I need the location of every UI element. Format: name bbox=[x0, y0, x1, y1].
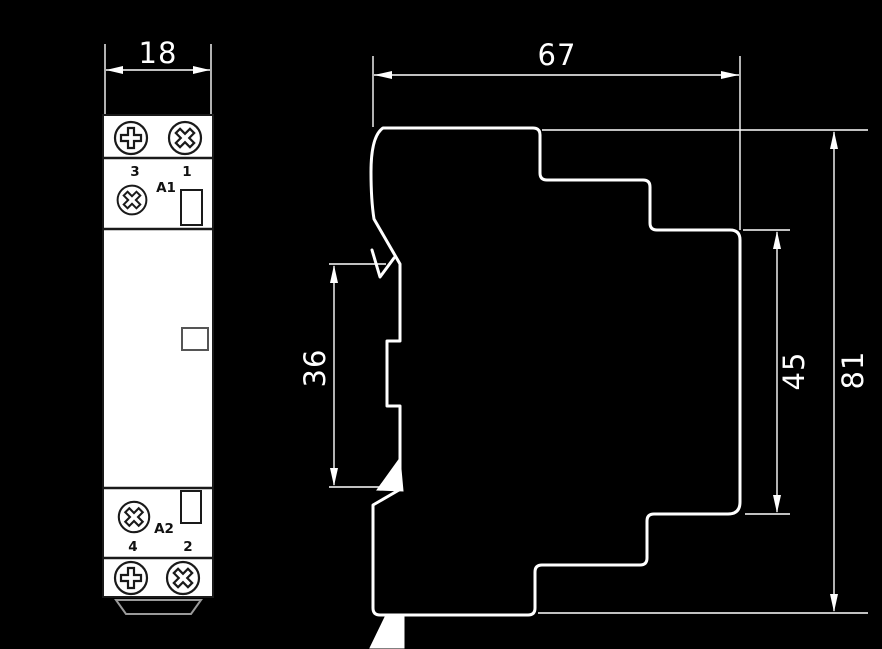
arrowhead-down-icon bbox=[773, 495, 781, 513]
rear-height-dimension: 45 bbox=[743, 230, 811, 514]
center-marker-window bbox=[182, 328, 208, 350]
arrowhead-up-icon bbox=[773, 231, 781, 249]
arrowhead-right-icon bbox=[193, 66, 210, 74]
screw-a1-icon bbox=[118, 186, 147, 215]
screw-bottom-left-icon bbox=[115, 562, 147, 594]
terminal-label-4: 4 bbox=[128, 539, 137, 555]
screw-a2-icon bbox=[119, 502, 149, 532]
arrowhead-down-icon bbox=[830, 594, 838, 612]
side-view: 67 36 45 bbox=[298, 38, 870, 648]
front-foot-trapezoid bbox=[116, 600, 201, 614]
screw-top-right-icon bbox=[169, 122, 201, 154]
arrowhead-left-icon bbox=[106, 66, 123, 74]
arrowhead-left-icon bbox=[374, 71, 392, 79]
arrowhead-down-icon bbox=[330, 468, 338, 486]
front-view: 18 3 1 A1 A2 bbox=[103, 36, 213, 614]
screw-top-left-icon bbox=[115, 122, 147, 154]
drawing-svg: 18 3 1 A1 A2 bbox=[0, 0, 882, 649]
din-clip-tab bbox=[377, 458, 403, 491]
rail-section-dimension: 36 bbox=[298, 264, 386, 487]
coil-label-a2: A2 bbox=[154, 521, 174, 537]
terminal-label-1: 1 bbox=[182, 164, 191, 180]
front-width-value: 18 bbox=[139, 36, 178, 70]
indicator-window bbox=[181, 491, 201, 523]
dimension-drawing-canvas: 18 3 1 A1 A2 bbox=[0, 0, 882, 649]
side-depth-dimension: 67 bbox=[373, 38, 740, 230]
coil-label-a1: A1 bbox=[156, 180, 176, 196]
indicator-window bbox=[181, 190, 202, 225]
screw-bottom-right-icon bbox=[167, 562, 199, 594]
arrowhead-up-icon bbox=[330, 265, 338, 283]
rail-section-value: 36 bbox=[298, 349, 332, 388]
overall-height-value: 81 bbox=[836, 351, 870, 390]
overall-height-dimension: 81 bbox=[538, 130, 870, 613]
terminal-label-2: 2 bbox=[183, 539, 192, 555]
front-width-dimension: 18 bbox=[105, 36, 211, 114]
side-profile-outline bbox=[371, 128, 740, 615]
terminal-label-3: 3 bbox=[130, 164, 139, 180]
rear-height-value: 45 bbox=[777, 352, 811, 391]
side-depth-value: 67 bbox=[538, 38, 577, 72]
arrowhead-up-icon bbox=[830, 131, 838, 149]
side-foot-block bbox=[370, 615, 404, 648]
arrowhead-right-icon bbox=[721, 71, 739, 79]
